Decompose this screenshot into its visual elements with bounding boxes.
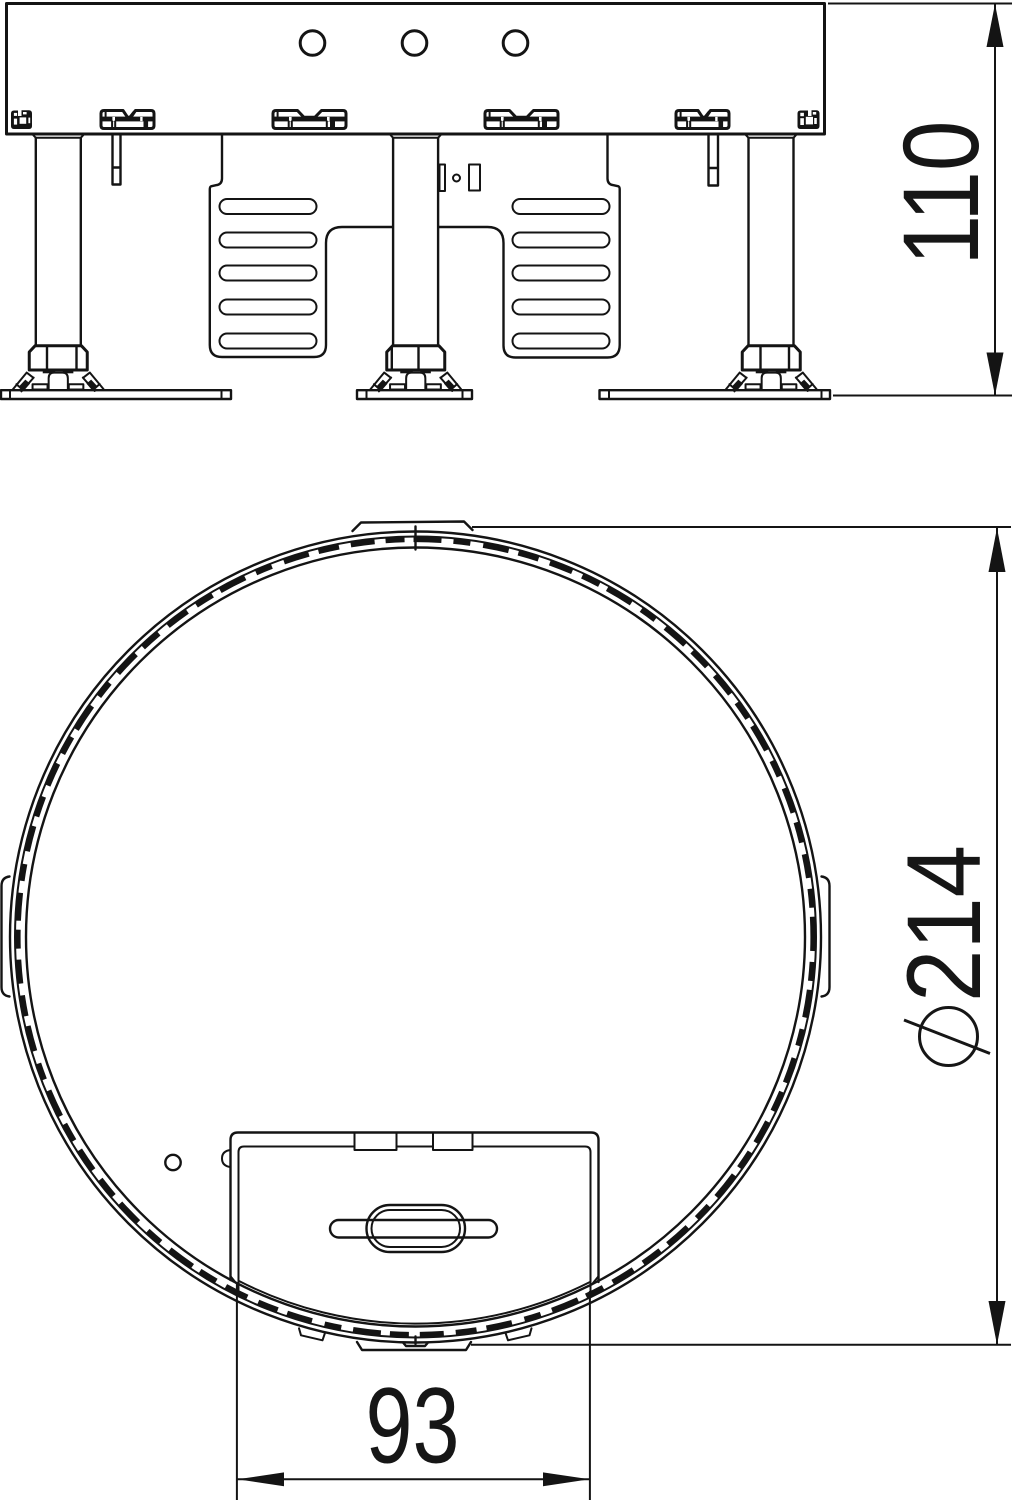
svg-text:110: 110 [880,121,1001,266]
svg-text:214: 214 [886,845,1003,1002]
svg-text:93: 93 [366,1364,460,1485]
